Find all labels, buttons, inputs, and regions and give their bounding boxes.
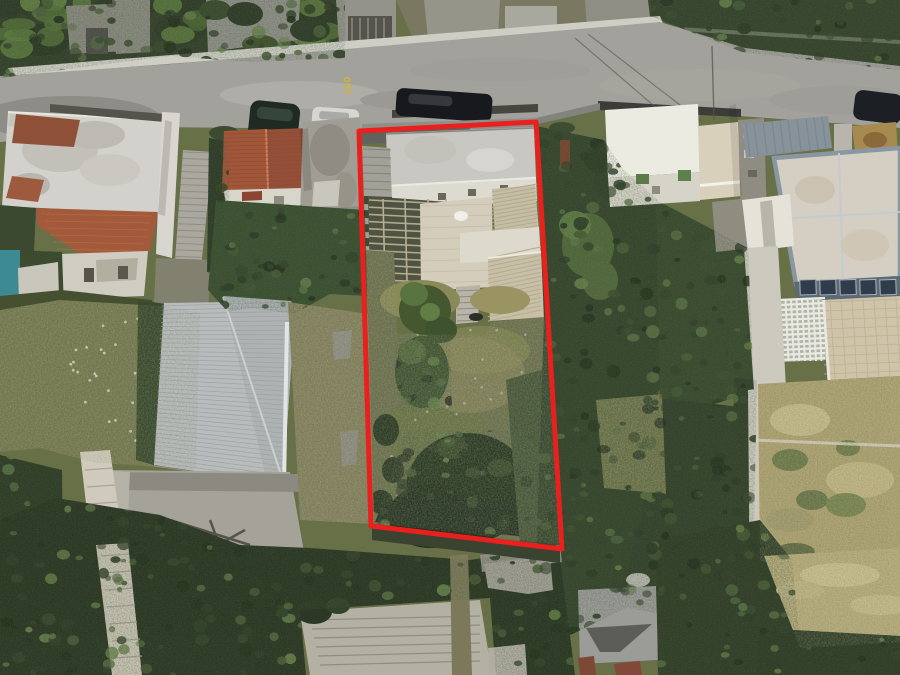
- svg-text:300: 300: [342, 76, 355, 95]
